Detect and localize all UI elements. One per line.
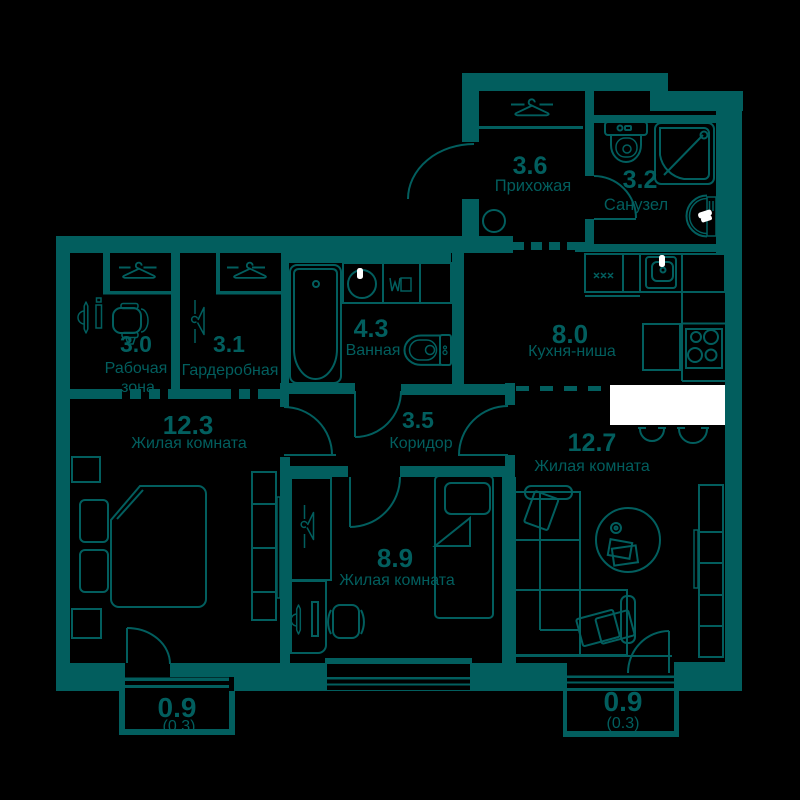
svg-text:Санузел: Санузел: [604, 196, 668, 214]
svg-text:(0.3): (0.3): [607, 715, 640, 732]
svg-text:12.7: 12.7: [568, 429, 617, 457]
svg-text:Жилая комната: Жилая комната: [534, 458, 650, 475]
svg-text:Кухня-ниша: Кухня-ниша: [528, 343, 616, 360]
svg-text:(0.3): (0.3): [163, 718, 196, 735]
svg-text:Жилая комната: Жилая комната: [131, 435, 247, 452]
svg-text:Ванная: Ванная: [346, 342, 401, 359]
svg-text:Коридор: Коридор: [389, 435, 452, 452]
svg-text:3.1: 3.1: [213, 331, 245, 357]
svg-text:4.3: 4.3: [354, 315, 389, 343]
svg-text:3.5: 3.5: [402, 407, 434, 433]
svg-text:Рабочая: Рабочая: [105, 360, 168, 377]
svg-text:3.2: 3.2: [623, 166, 658, 194]
svg-text:3.6: 3.6: [513, 152, 548, 180]
svg-text:зона: зона: [121, 379, 155, 396]
svg-text:Жилая комната: Жилая комната: [339, 572, 455, 589]
svg-text:Гардеробная: Гардеробная: [182, 362, 279, 379]
svg-text:3.0: 3.0: [120, 331, 152, 357]
svg-text:0.9: 0.9: [604, 686, 643, 717]
svg-text:8.9: 8.9: [377, 543, 413, 573]
svg-text:Прихожая: Прихожая: [495, 177, 571, 195]
